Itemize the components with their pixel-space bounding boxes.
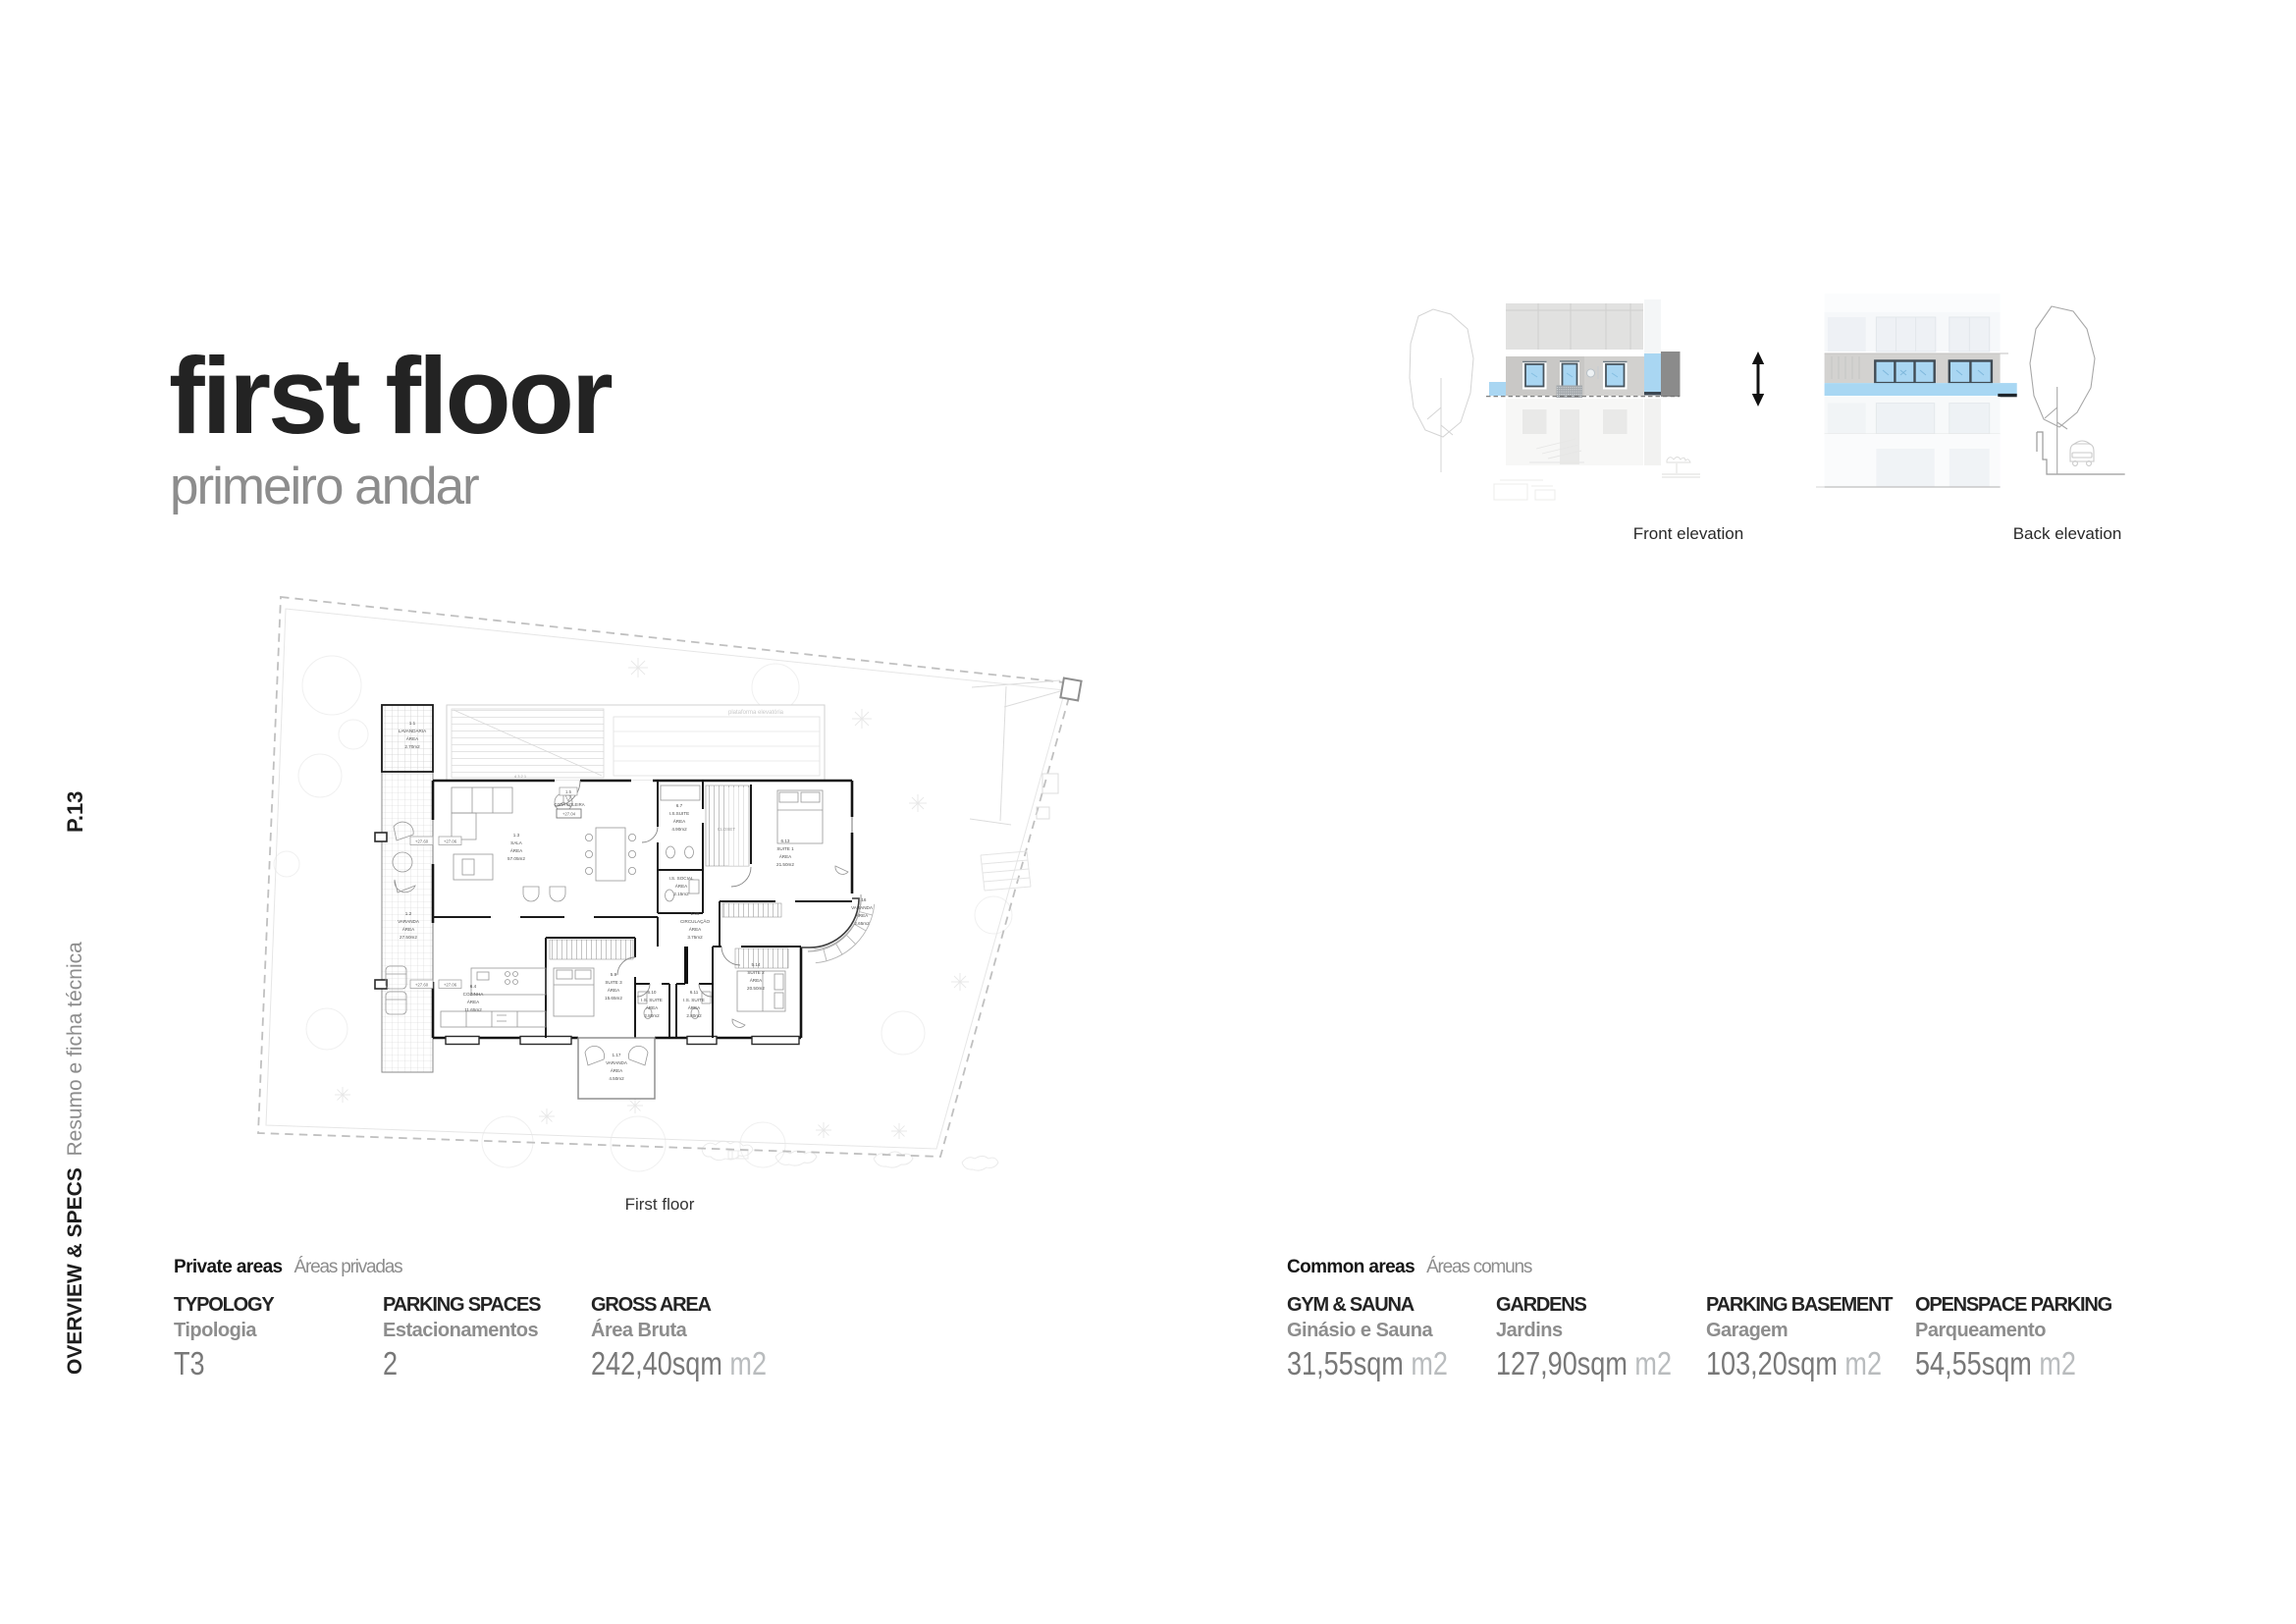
svg-text:ÁREA: ÁREA (510, 847, 523, 853)
svg-text:COZINHA: COZINHA (463, 992, 485, 997)
svg-text:1.1: 1.1 (409, 721, 416, 726)
svg-text:+27.04: +27.04 (562, 812, 576, 817)
svg-text:ÁREA: ÁREA (467, 999, 480, 1004)
svg-text:SUITE 1: SUITE 1 (776, 846, 794, 851)
svg-text:plataforma elevatória: plataforma elevatória (728, 710, 784, 716)
svg-text:2.80m2: 2.80m2 (644, 1013, 660, 1018)
svg-text:LAVANDARIA: LAVANDARIA (399, 729, 427, 733)
svg-text:2.70m2: 2.70m2 (404, 744, 420, 749)
svg-text:6.4: 6.4 (470, 984, 477, 989)
svg-text:SALA: SALA (510, 840, 523, 845)
svg-text:20.50m2: 20.50m2 (747, 986, 765, 991)
svg-text:I.S.SUITE: I.S.SUITE (669, 811, 689, 816)
svg-text:ÁREA: ÁREA (689, 926, 702, 932)
svg-text:I.S. SUITE: I.S. SUITE (641, 998, 663, 1002)
svg-text:I.S. SOCIAL: I.S. SOCIAL (668, 876, 693, 881)
svg-text:COTA SOLEIRA: COTA SOLEIRA (554, 802, 584, 807)
svg-text:+27.60: +27.60 (415, 983, 429, 988)
svg-text:ÁREA: ÁREA (673, 818, 686, 824)
svg-text:2.65m2: 2.65m2 (854, 921, 870, 926)
svg-text:5.9: 5.9 (611, 972, 617, 977)
svg-text:ÁREA: ÁREA (779, 853, 792, 859)
svg-text:I.S. SUITE: I.S. SUITE (683, 998, 705, 1002)
svg-text:1.2: 1.2 (405, 911, 412, 916)
svg-text:4 3 2 1: 4 3 2 1 (514, 774, 527, 779)
svg-text:11.65m2: 11.65m2 (464, 1007, 482, 1012)
svg-text:6.10: 6.10 (648, 990, 657, 995)
svg-text:ÁREA: ÁREA (750, 977, 763, 983)
svg-text:+27.06: +27.06 (444, 983, 457, 988)
svg-text:4.50m2: 4.50m2 (609, 1076, 624, 1081)
svg-text:57.05m2: 57.05m2 (507, 856, 525, 861)
svg-text:VARANDA: VARANDA (851, 905, 874, 910)
svg-text:ÁREA: ÁREA (688, 1004, 701, 1010)
svg-text:5.14: 5.14 (752, 962, 761, 967)
svg-text:1.17: 1.17 (613, 1053, 621, 1057)
svg-text:4.90m2: 4.90m2 (671, 827, 687, 832)
svg-text:2.15m2: 2.15m2 (673, 892, 689, 896)
svg-text:CLOSET: CLOSET (718, 827, 736, 832)
svg-text:1.3: 1.3 (513, 833, 520, 838)
svg-text:6.7: 6.7 (676, 803, 683, 808)
svg-text:VARANDA: VARANDA (606, 1060, 628, 1065)
svg-text:15.65m2: 15.65m2 (605, 996, 622, 1001)
svg-text:ÁREA: ÁREA (646, 1004, 659, 1010)
svg-text:+27.60: +27.60 (415, 839, 429, 844)
svg-text:+27.06: +27.06 (444, 839, 457, 844)
svg-text:1.16: 1.16 (858, 897, 867, 902)
svg-text:1.06: 1.06 (691, 911, 700, 916)
svg-text:CIRCULAÇÃO: CIRCULAÇÃO (680, 918, 711, 924)
svg-text:VARANDA: VARANDA (398, 919, 420, 924)
svg-text:ÁREA: ÁREA (856, 912, 869, 918)
svg-text:ÁREA: ÁREA (402, 926, 415, 932)
svg-text:1.5: 1.5 (565, 789, 572, 794)
svg-text:3.75m2: 3.75m2 (687, 935, 703, 940)
svg-text:6.11: 6.11 (690, 990, 699, 995)
svg-text:SUITE 2: SUITE 2 (747, 970, 765, 975)
svg-text:ÁREA: ÁREA (406, 735, 419, 741)
svg-text:SUITE 3: SUITE 3 (605, 980, 622, 985)
svg-text:ÁREA: ÁREA (608, 987, 620, 993)
svg-text:6.13: 6.13 (781, 839, 790, 843)
svg-text:ÁREA: ÁREA (675, 883, 688, 889)
svg-text:27.50m2: 27.50m2 (400, 935, 417, 940)
svg-text:ÁREA: ÁREA (611, 1067, 623, 1073)
svg-text:2.80m2: 2.80m2 (686, 1013, 702, 1018)
svg-text:21.50m2: 21.50m2 (776, 862, 794, 867)
